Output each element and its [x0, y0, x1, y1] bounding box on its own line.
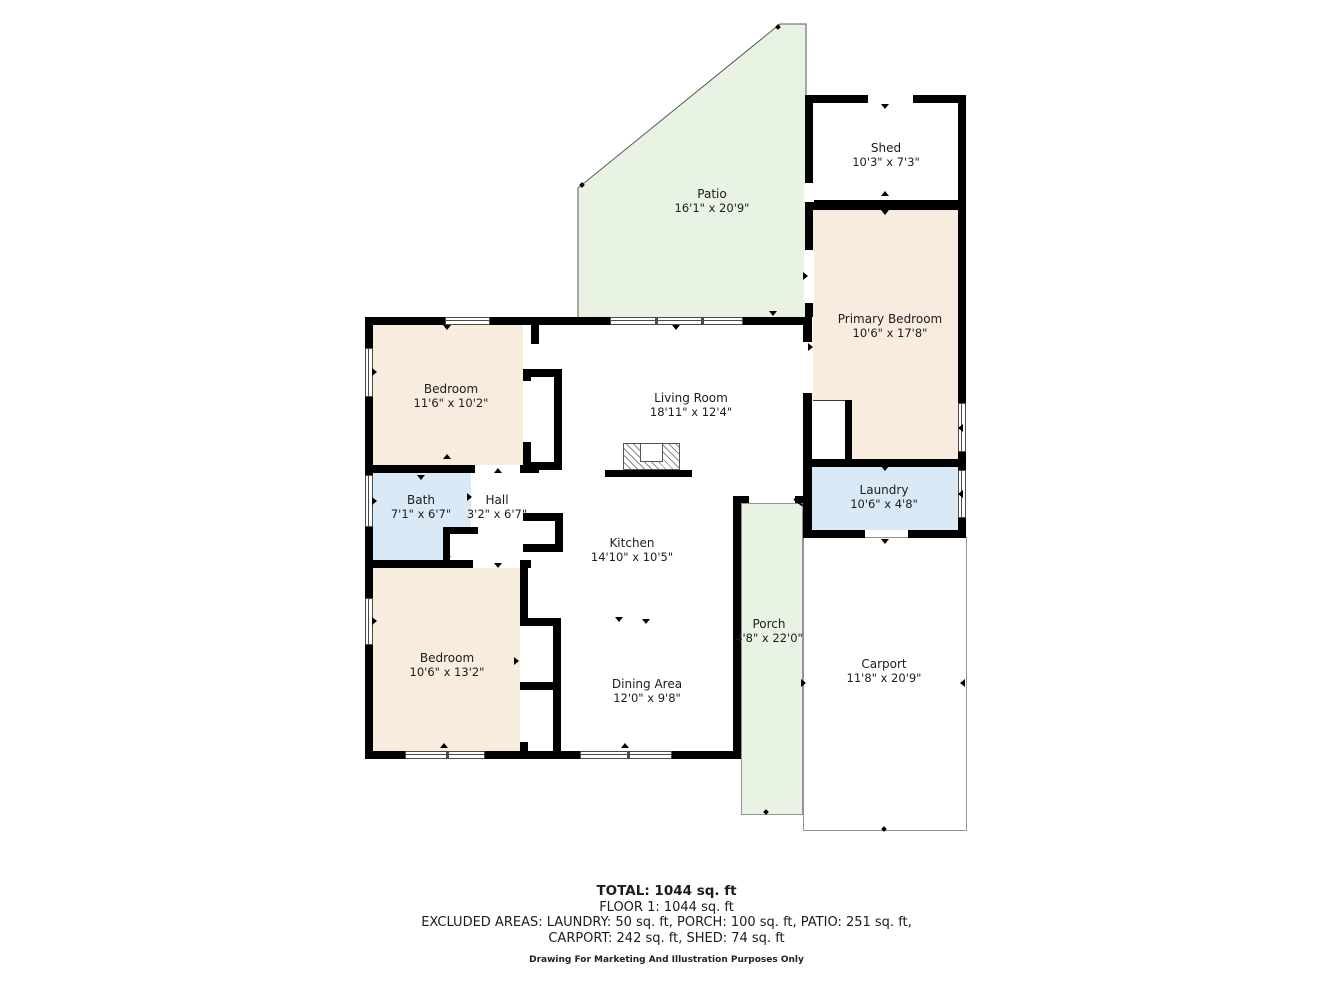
laundry-dims: 10'6" x 4'8" — [850, 497, 918, 511]
shed-name: Shed — [852, 141, 920, 155]
wall-segment — [443, 527, 478, 534]
window-icon — [580, 751, 672, 759]
room-label-patio: Patio 16'1" x 20'9" — [675, 187, 750, 215]
excluded-areas-text-1: EXCLUDED AREAS: LAUNDRY: 50 sq. ft, PORC… — [0, 915, 1333, 931]
wall-segment — [365, 397, 373, 475]
door-tick-icon — [494, 468, 502, 473]
window-icon — [445, 317, 490, 325]
room-label-living-room: Living Room 18'11" x 12'4" — [650, 391, 732, 419]
edge-marker-icon — [881, 826, 887, 832]
room-label-laundry: Laundry 10'6" x 4'8" — [850, 483, 918, 511]
door-tick-icon — [808, 343, 813, 351]
floor-area-text: FLOOR 1: 1044 sq. ft — [0, 900, 1333, 916]
room-label-bedroom-bottom: Bedroom 10'6" x 13'2" — [410, 651, 485, 679]
wall-segment — [908, 530, 966, 538]
bedroom-bottom-dims: 10'6" x 13'2" — [410, 665, 485, 679]
dining-area-name: Dining Area — [612, 677, 682, 691]
dining-area-dims: 12'0" x 9'8" — [612, 691, 682, 705]
wall-segment — [805, 303, 813, 317]
door-tick-icon — [372, 368, 377, 376]
door-tick-icon — [958, 148, 963, 156]
bedroom-bottom-name: Bedroom — [410, 651, 485, 665]
door-tick-icon — [642, 619, 650, 624]
living-room-dims: 18'11" x 12'4" — [650, 405, 732, 419]
bedroom-top-dims: 11'6" x 10'2" — [414, 396, 489, 410]
wall-segment — [672, 751, 741, 759]
window-icon — [610, 317, 743, 325]
laundry-name: Laundry — [850, 483, 918, 497]
door-tick-icon — [960, 679, 965, 687]
closet-doorway-line — [813, 400, 845, 401]
living-room-name: Living Room — [650, 391, 732, 405]
primary-bedroom-name: Primary Bedroom — [838, 312, 942, 326]
door-tick-icon — [881, 539, 889, 544]
room-label-carport: Carport 11'8" x 20'9" — [847, 657, 922, 685]
door-tick-icon — [443, 454, 451, 459]
patio-name: Patio — [675, 187, 750, 201]
door-tick-icon — [615, 617, 623, 622]
door-tick-icon — [958, 424, 963, 432]
door-tick-icon — [672, 325, 680, 330]
carport-name: Carport — [847, 657, 922, 671]
disclaimer-text: Drawing For Marketing And Illustration P… — [0, 955, 1333, 965]
primary-bedroom-dims: 10'6" x 17'8" — [838, 326, 942, 340]
wall-segment — [805, 210, 813, 250]
wall-segment — [803, 530, 865, 538]
room-label-dining-area: Dining Area 12'0" x 9'8" — [612, 677, 682, 705]
door-tick-icon — [769, 311, 777, 316]
wall-segment — [365, 317, 373, 348]
wall-segment — [958, 95, 966, 403]
carport-dims: 11'8" x 20'9" — [847, 671, 922, 685]
wall-segment — [531, 317, 539, 344]
door-tick-icon — [514, 657, 519, 665]
door-tick-icon — [417, 475, 425, 480]
door-tick-icon — [881, 191, 889, 196]
wall-segment — [523, 544, 563, 552]
wall-segment — [743, 317, 812, 325]
door-tick-icon — [881, 210, 889, 215]
porch-name: Porch — [735, 617, 803, 631]
wall-segment — [553, 618, 561, 690]
door-tick-icon — [372, 497, 377, 505]
wall-segment — [554, 369, 562, 470]
door-tick-icon — [443, 552, 451, 557]
total-area-text: TOTAL: 1044 sq. ft — [0, 884, 1333, 900]
hall-dims: 3'2" x 6'7" — [467, 507, 527, 521]
door-tick-icon — [621, 743, 629, 748]
door-opening — [804, 183, 814, 202]
door-tick-icon — [803, 272, 808, 280]
wall-segment — [365, 751, 405, 759]
door-tick-icon — [440, 743, 448, 748]
wall-segment — [485, 751, 580, 759]
wall-segment — [365, 317, 445, 325]
edge-marker-icon — [579, 182, 585, 188]
excluded-areas-text-2: CARPORT: 242 sq. ft, SHED: 74 sq. ft — [0, 931, 1333, 947]
hall-name: Hall — [467, 493, 527, 507]
wall-segment — [365, 465, 475, 473]
door-tick-icon — [801, 679, 806, 687]
wall-segment — [520, 742, 528, 759]
wall-segment — [805, 200, 966, 210]
wall-segment — [365, 560, 473, 568]
wall-segment — [490, 317, 610, 325]
floor-plan-canvas: Patio 16'1" x 20'9" Shed 10'3" x 7'3" Pr… — [0, 0, 1333, 1000]
room-label-primary-bedroom: Primary Bedroom 10'6" x 17'8" — [838, 312, 942, 340]
room-label-bedroom-top: Bedroom 11'6" x 10'2" — [414, 382, 489, 410]
wall-segment — [805, 95, 868, 103]
room-label-kitchen: Kitchen 14'10" x 10'5" — [591, 536, 673, 564]
edge-marker-icon — [763, 809, 769, 815]
wall-segment — [520, 560, 528, 620]
edge-marker-icon — [775, 24, 781, 30]
room-label-shed: Shed 10'3" x 7'3" — [852, 141, 920, 169]
plan-structure-layer — [0, 0, 1333, 1000]
door-tick-icon — [443, 325, 451, 330]
kitchen-name: Kitchen — [591, 536, 673, 550]
door-tick-icon — [958, 490, 963, 498]
window-icon — [405, 751, 485, 759]
door-tick-icon — [881, 466, 889, 471]
wall-segment — [845, 400, 852, 459]
bath-dims: 7'1" x 6'7" — [391, 507, 451, 521]
shed-dims: 10'3" x 7'3" — [852, 155, 920, 169]
room-label-bath: Bath 7'1" x 6'7" — [391, 493, 451, 521]
footer-summary: TOTAL: 1044 sq. ft FLOOR 1: 1044 sq. ft … — [0, 884, 1333, 965]
wall-segment — [520, 465, 539, 473]
wall-segment — [805, 95, 813, 183]
kitchen-dims: 14'10" x 10'5" — [591, 550, 673, 564]
patio-dims: 16'1" x 20'9" — [675, 201, 750, 215]
bedroom-top-name: Bedroom — [414, 382, 489, 396]
room-label-hall: Hall 3'2" x 6'7" — [467, 493, 527, 521]
room-label-porch: Porch 4'8" x 22'0" — [735, 617, 803, 645]
wall-segment — [803, 317, 812, 342]
porch-dims: 4'8" x 22'0" — [735, 631, 803, 645]
wall-segment — [553, 682, 561, 759]
door-tick-icon — [494, 563, 502, 568]
door-tick-icon — [881, 104, 889, 109]
wall-segment — [523, 369, 531, 381]
door-tick-icon — [372, 617, 377, 625]
bath-name: Bath — [391, 493, 451, 507]
wall-segment — [365, 645, 373, 759]
